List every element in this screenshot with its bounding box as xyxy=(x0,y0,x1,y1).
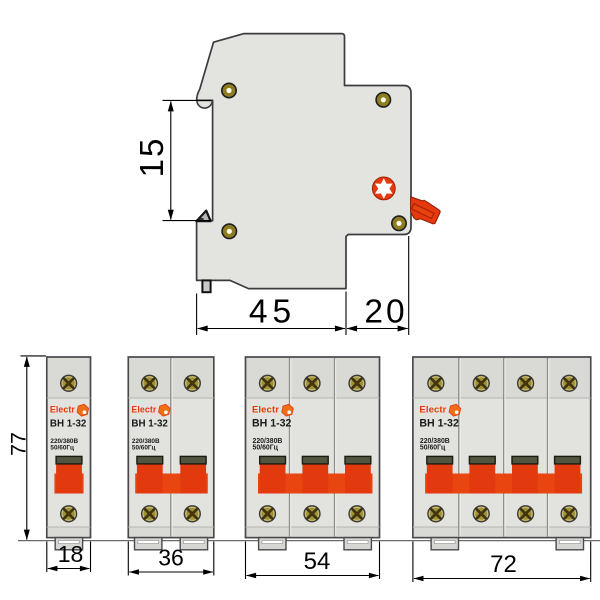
svg-text:Electr: Electr xyxy=(50,405,76,415)
svg-text:50/60Гц: 50/60Гц xyxy=(132,445,156,452)
svg-text:54: 54 xyxy=(304,548,331,575)
svg-text:15: 15 xyxy=(133,137,170,178)
svg-text:ВН 1-32: ВН 1-32 xyxy=(131,418,168,429)
svg-text:18: 18 xyxy=(58,541,84,567)
svg-text:72: 72 xyxy=(490,551,517,578)
svg-text:50/60Гц: 50/60Гц xyxy=(253,445,279,452)
svg-text:Electr: Electr xyxy=(131,405,157,415)
svg-text:45: 45 xyxy=(249,294,296,331)
svg-text:ВН 1-32: ВН 1-32 xyxy=(419,417,459,429)
svg-text:36: 36 xyxy=(158,545,184,571)
svg-text:50/60Гц: 50/60Гц xyxy=(50,445,74,452)
svg-text:ВН 1-32: ВН 1-32 xyxy=(252,417,292,429)
svg-text:77: 77 xyxy=(6,432,30,456)
svg-text:20: 20 xyxy=(364,294,407,331)
svg-text:Electr: Electr xyxy=(419,405,446,416)
svg-text:ВН 1-32: ВН 1-32 xyxy=(50,418,87,429)
svg-text:50/60Гц: 50/60Гц xyxy=(420,445,446,452)
svg-text:Electr: Electr xyxy=(252,405,279,416)
